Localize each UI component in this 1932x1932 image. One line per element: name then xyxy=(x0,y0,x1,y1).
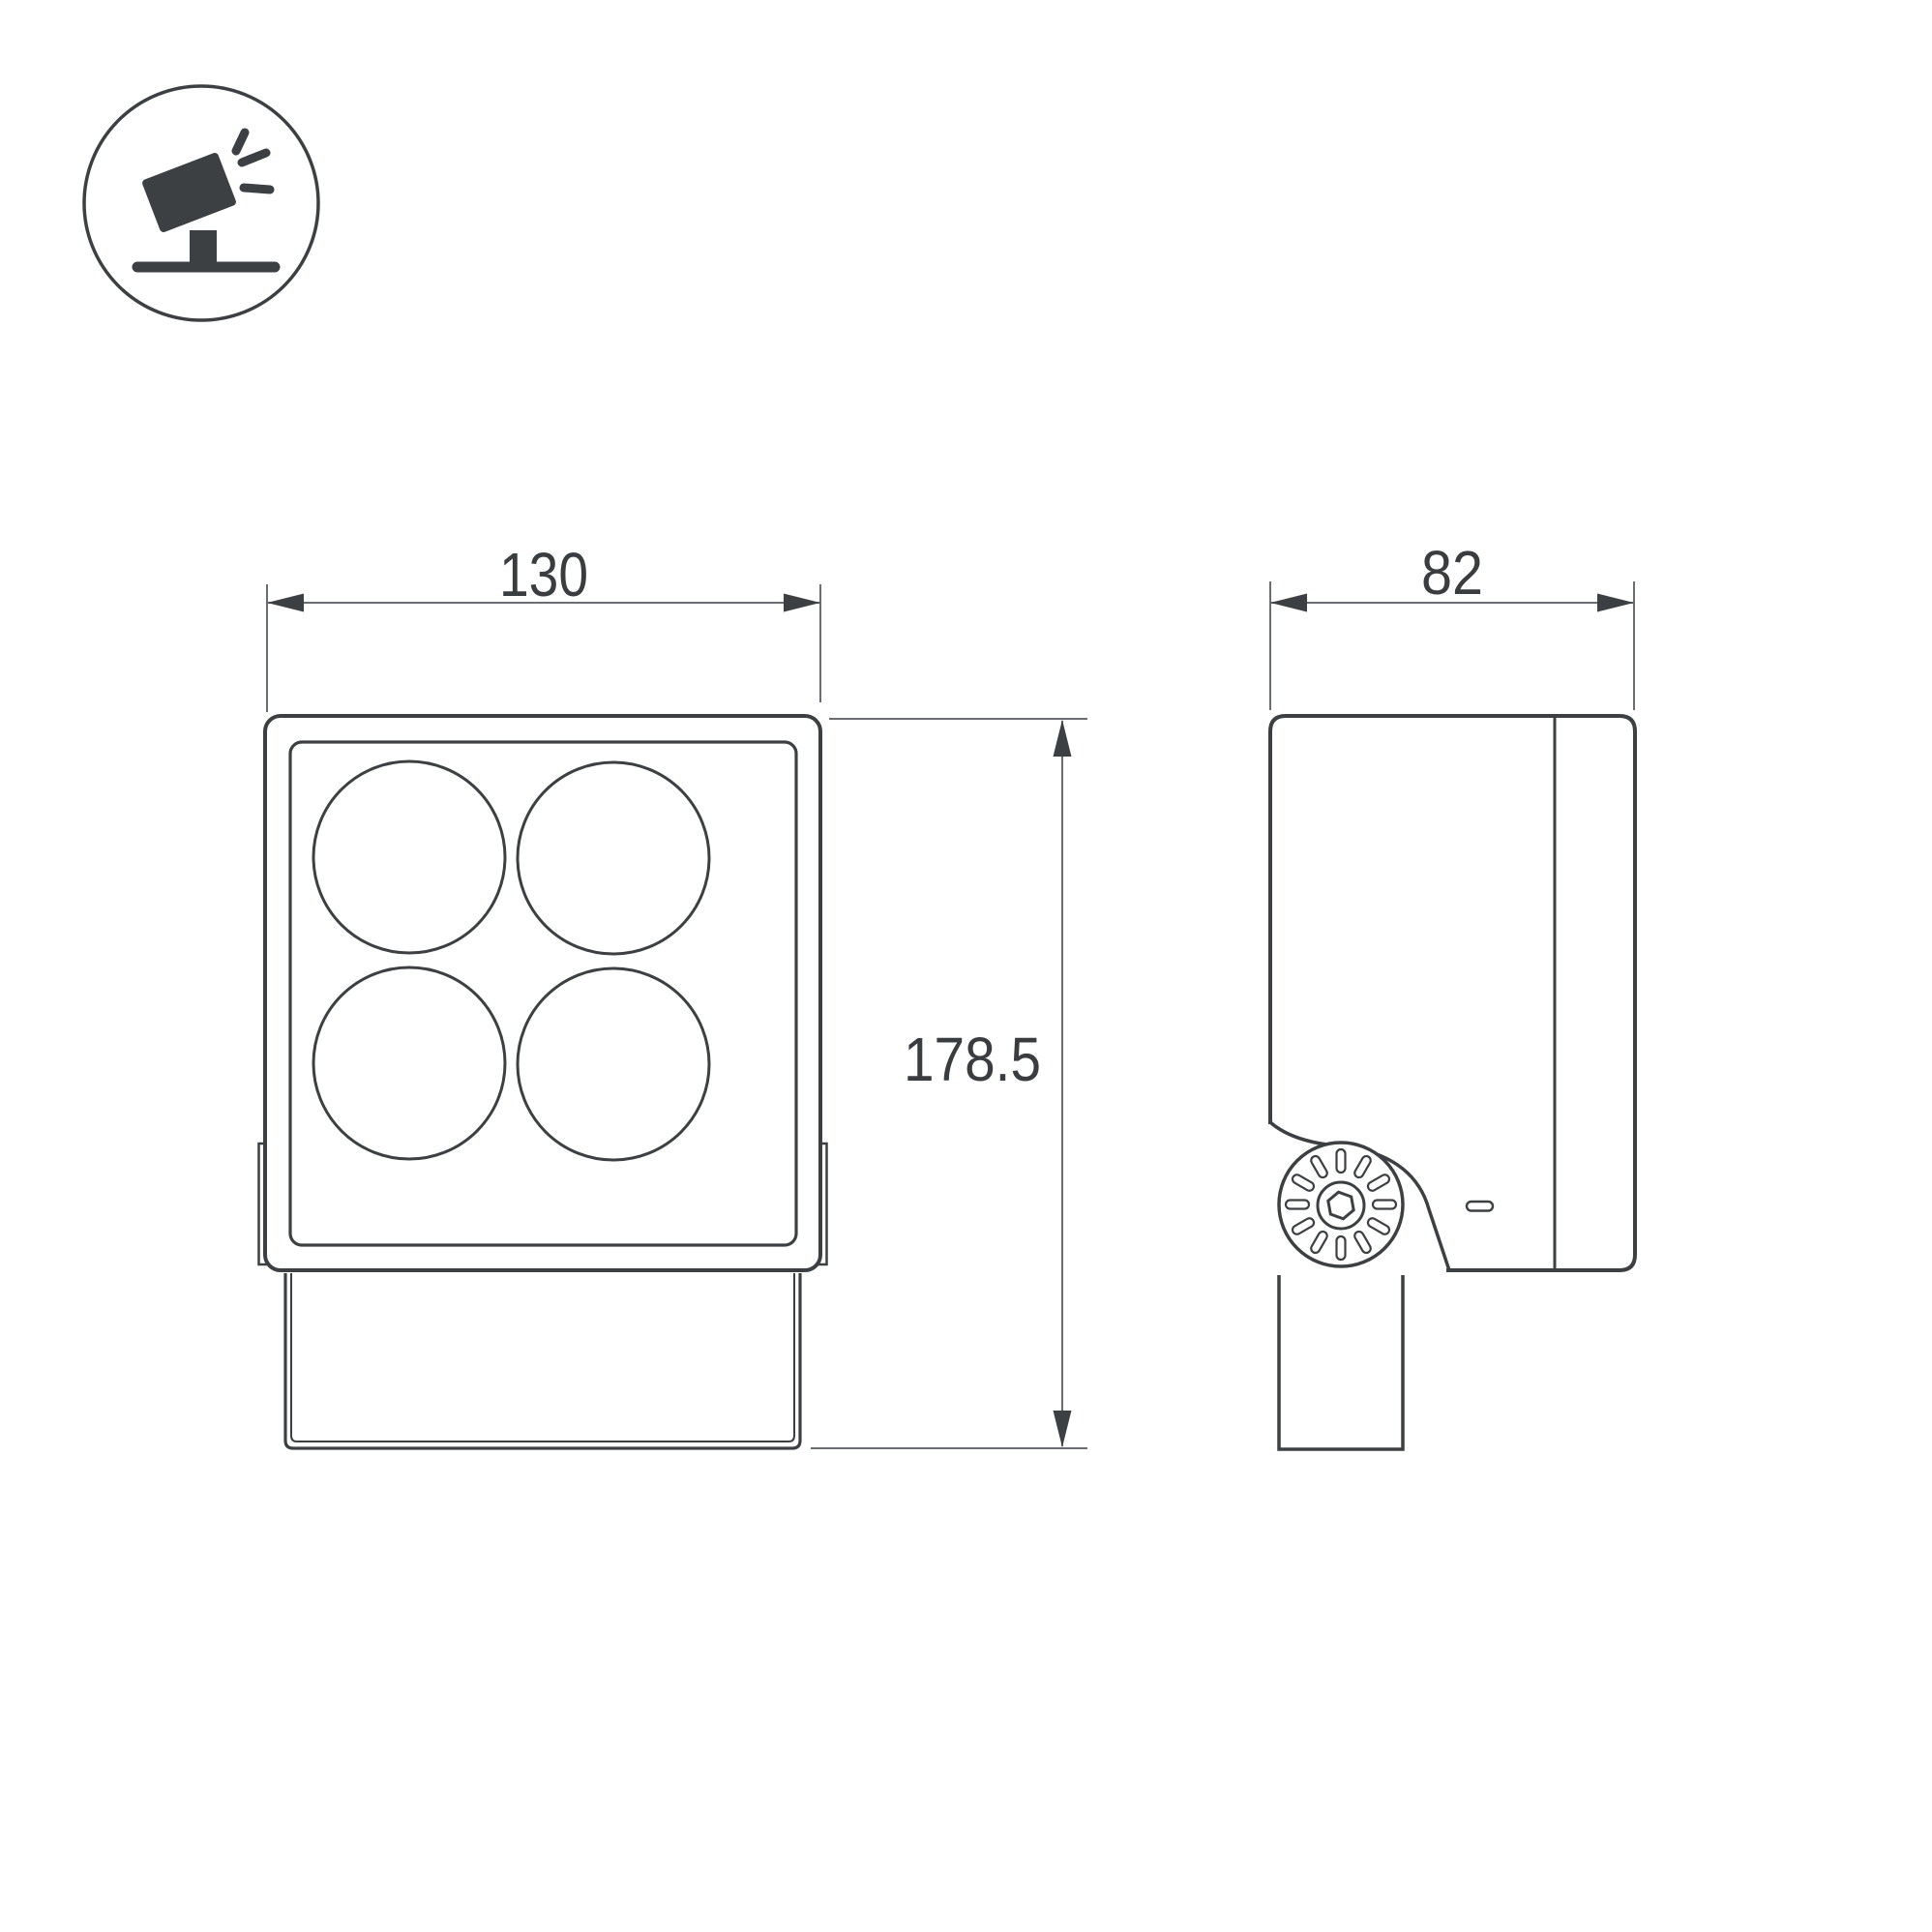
front-housing xyxy=(265,716,820,1270)
dimension-height: 178.5 xyxy=(811,719,1087,1448)
dim-width-label: 130 xyxy=(499,540,588,609)
side-adjustment-knob xyxy=(1279,1143,1403,1266)
dim-height-label: 178.5 xyxy=(904,1025,1041,1094)
icon-lamp-head xyxy=(141,152,237,233)
arrowhead-down xyxy=(1054,1411,1072,1447)
technical-drawing-sheet: 130 82 178.5 xyxy=(0,0,1932,1932)
icon-light-rays xyxy=(236,133,270,190)
dimension-width: 130 xyxy=(267,540,820,712)
icon-lamp-post xyxy=(190,230,217,265)
side-indicator-slot xyxy=(1467,1202,1493,1211)
tilted-floodlight-icon xyxy=(84,86,318,320)
front-mount-box xyxy=(285,1273,800,1448)
arrowhead-up xyxy=(1054,720,1072,757)
arrowhead-right xyxy=(1597,594,1634,612)
arrowhead-left xyxy=(1270,594,1307,612)
dim-depth-label: 82 xyxy=(1421,538,1483,608)
arrowhead-left xyxy=(267,594,304,612)
dimension-depth: 82 xyxy=(1270,538,1634,710)
arrowhead-right xyxy=(784,594,820,612)
side-view xyxy=(1267,716,1635,1449)
front-view xyxy=(259,716,827,1448)
knob-hex-socket xyxy=(1328,1192,1353,1219)
